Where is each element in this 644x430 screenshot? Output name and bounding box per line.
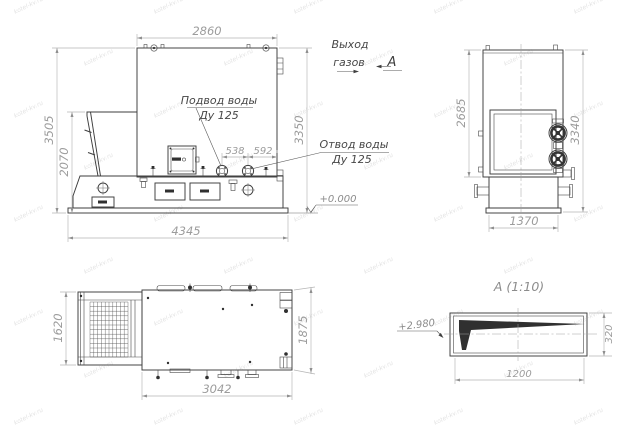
- side-view: 2685 3340 1370: [454, 44, 588, 232]
- boiler-drawing-svg: kotel-kv.ru: [0, 0, 644, 430]
- grate-grid: [90, 302, 128, 357]
- side-stub-left: [477, 187, 489, 195]
- view-marker-label: А: [387, 55, 397, 70]
- side-stub-right: [558, 187, 570, 195]
- dim-plan-width-body: 1875: [296, 315, 310, 344]
- dim-front-height-total: 3505: [42, 115, 56, 144]
- view-direction-arrow-icon: [376, 65, 382, 68]
- furnace-door: [168, 146, 199, 174]
- rear-door-frame: [490, 110, 556, 174]
- valve-handwheel-icon: [549, 124, 567, 142]
- technical-drawing-canvas: kotel-kv.ru: [0, 0, 644, 430]
- side-bracket: [277, 58, 283, 74]
- label-gas-outlet-2: газов: [333, 56, 365, 69]
- level-zero-label: +0.000: [319, 194, 356, 205]
- valve-handwheel-icon: [549, 150, 567, 168]
- side-base-outline: [489, 177, 558, 208]
- dim-flange-1: 538: [225, 146, 244, 157]
- dim-plan-width-conveyor: 1620: [51, 313, 65, 342]
- dim-flange-2: 592: [253, 146, 272, 157]
- dim-detail-height: 320: [604, 324, 615, 343]
- gas-duct-outline: [450, 313, 587, 356]
- dim-front-height-hopper: 2070: [57, 147, 71, 176]
- dim-base-length: 4345: [171, 224, 200, 238]
- label-water-return: Отвод воды: [320, 138, 389, 151]
- label-water-supply-dn: Ду 125: [198, 109, 239, 122]
- dim-front-height-right: 3350: [292, 115, 306, 144]
- dim-detail-length: 1200: [506, 369, 531, 380]
- detail-view-a: А (1:10) +2.980 1200 320: [397, 279, 615, 384]
- plan-body-outline: [142, 290, 292, 370]
- label-water-return-dn: Ду 125: [331, 153, 372, 166]
- conveyor-frame-outline: [78, 292, 142, 365]
- dim-side-height-front: 2685: [454, 98, 468, 127]
- detail-title: А (1:10): [493, 279, 544, 294]
- plan-view: 1620 1875 3042: [51, 284, 315, 401]
- dim-front-width: 2860: [192, 24, 221, 38]
- label-water-supply: Подвод воды: [181, 94, 258, 107]
- dim-side-width: 1370: [509, 214, 538, 228]
- damper-wedge-section: [459, 320, 585, 350]
- gas-direction-arrow-icon: [354, 70, 360, 73]
- water-return-flange-icon: [242, 165, 253, 176]
- dim-side-height-total: 3340: [568, 115, 582, 144]
- label-gas-outlet-1: Выход: [331, 38, 368, 51]
- dim-plan-length: 3042: [202, 382, 231, 396]
